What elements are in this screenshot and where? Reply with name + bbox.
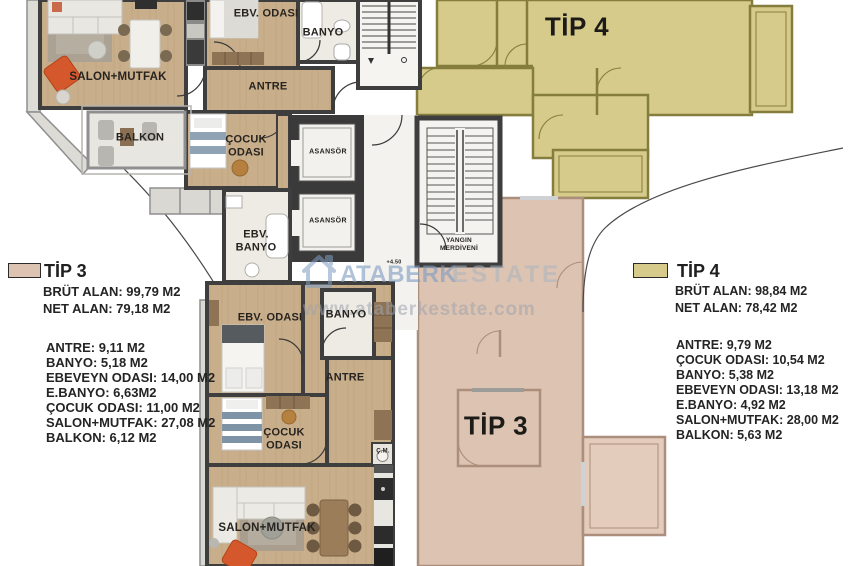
house-logo-icon xyxy=(300,253,340,291)
room-label-balcony-top: BALKON xyxy=(116,131,164,144)
room-label-elevator-2: ASANSÖR xyxy=(309,218,347,227)
legend-tip3-gross: BRÜT ALAN: 99,79 M2 xyxy=(43,284,180,299)
floor-plan-page: ATABERK ESTATE www.ataberkestate.com SAL… xyxy=(0,0,850,566)
legend-tip4-item: BALKON: 5,63 M2 xyxy=(676,428,782,442)
room-label-hall-bottom: ANTRE xyxy=(326,371,365,384)
legend-tip4-title: TİP 4 xyxy=(677,261,720,282)
watermark-brand-right: ESTATE xyxy=(452,261,561,289)
room-label-salon-bottom: SALON+MUTFAK xyxy=(218,521,315,535)
legend-tip4-item: EBEVEYN ODASI: 13,18 M2 xyxy=(676,383,839,397)
legend-tip3-item: EBEVEYN ODASI: 14,00 M2 xyxy=(46,370,215,385)
legend-tip3-item: E.BANYO: 6,63M2 xyxy=(46,385,157,400)
legend-tip3-item: BALKON: 6,12 M2 xyxy=(46,430,157,445)
legend-tip3-title: TİP 3 xyxy=(44,261,87,282)
room-label-master-bottom: EBV. ODASI xyxy=(238,311,303,324)
room-label-hall-top: ANTRE xyxy=(249,80,288,93)
legend-tip4-item: E.BANYO: 4,92 M2 xyxy=(676,398,786,412)
legend-tip4-item: SALON+MUTFAK: 28,00 M2 xyxy=(676,413,839,427)
tip4-plan-title: TİP 4 xyxy=(545,12,609,43)
legend-tip4-item: ÇOCUK ODASI: 10,54 M2 xyxy=(676,353,825,367)
room-label-kids-top: ÇOCUK ODASI xyxy=(218,134,274,161)
room-label-elevator-1: ASANSÖR xyxy=(309,149,347,158)
tip3-plan-title: TİP 3 xyxy=(464,411,528,442)
room-label-washer: Ç.M. xyxy=(376,448,389,455)
tip3-color-swatch xyxy=(8,263,41,278)
legend-tip4-item: BANYO: 5,38 M2 xyxy=(676,368,774,382)
tip4-color-swatch xyxy=(633,263,668,278)
room-label-bath-bottom: BANYO xyxy=(326,308,367,321)
room-label-salon-top: SALON+MUTFAK xyxy=(69,70,166,84)
room-label-kids-bottom: ÇOCUK ODASI xyxy=(256,427,312,454)
legend-tip4-gross: BRÜT ALAN: 98,84 M2 xyxy=(675,284,807,298)
legend-tip3-item: SALON+MUTFAK: 27,08 M2 xyxy=(46,415,215,430)
legend-tip3-net: NET ALAN: 79,18 M2 xyxy=(43,301,170,316)
legend-tip3-item: ÇOCUK ODASI: 11,00 M2 xyxy=(46,400,200,415)
room-label-bath-top: BANYO xyxy=(303,26,344,39)
room-label-master-bath-core: EBV. BANYO xyxy=(234,229,278,256)
room-label-master-top: EBV. ODASI xyxy=(234,7,299,20)
legend-tip4-item: ANTRE: 9,79 M2 xyxy=(676,338,772,352)
legend-tip3-item: BANYO: 5,18 M2 xyxy=(46,355,148,370)
room-label-fire-stairs: YANGIN MERDİVENİ xyxy=(435,237,483,253)
legend-tip3-item: ANTRE: 9,11 M2 xyxy=(46,340,145,355)
legend-tip4-net: NET ALAN: 78,42 M2 xyxy=(675,301,797,315)
level-mark: +4.50 xyxy=(387,260,402,267)
